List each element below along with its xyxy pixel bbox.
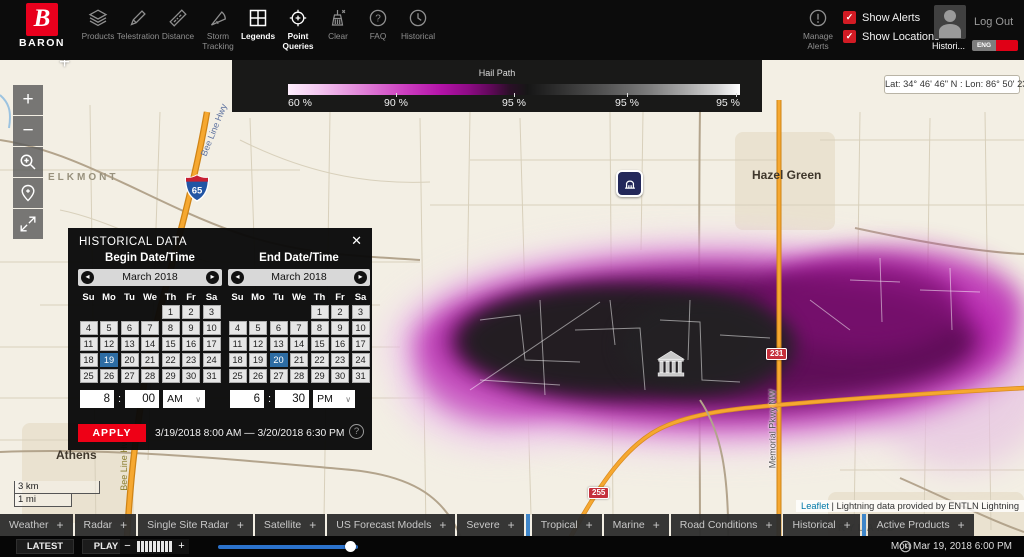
end-time-row: : PM ∨ <box>228 390 370 408</box>
begin-datetime-column: Begin Date/Time ◂ March 2018 ▸ SuMoTuWeT… <box>78 252 222 408</box>
calendar-day-25[interactable]: 25 <box>229 369 247 383</box>
end-meridiem-select[interactable]: PM ∨ <box>313 390 355 408</box>
show-locations-checkbox-row[interactable]: ✓ Show Locations <box>843 30 940 43</box>
legend-label-1: 90 % <box>384 97 408 109</box>
add-icon[interactable]: + <box>120 518 127 532</box>
calendar-empty-cell <box>249 305 267 319</box>
calendar-day-29[interactable]: 29 <box>162 369 180 383</box>
calendar-day-18[interactable]: 18 <box>80 353 98 367</box>
calendar-day-1[interactable]: 1 <box>311 305 329 319</box>
faster-button[interactable]: + <box>174 539 189 554</box>
help-icon[interactable]: ? <box>349 424 364 439</box>
calendar-day-header: Sa <box>352 292 370 303</box>
calendar-day-30[interactable]: 30 <box>182 369 200 383</box>
scale-mi: 1 mi <box>14 493 72 507</box>
calendar-day-31[interactable]: 31 <box>203 369 221 383</box>
toolbar-item-legends[interactable]: Legends <box>238 7 278 42</box>
apply-button[interactable]: APPLY <box>78 424 146 442</box>
end-calendar-grid: SuMoTuWeThFrSa12345678910111213141516171… <box>228 292 370 383</box>
calendar-day-28[interactable]: 28 <box>290 369 308 383</box>
calendar-empty-cell <box>290 305 308 319</box>
frame-rate-bar <box>137 541 140 552</box>
tab-separator <box>526 514 530 536</box>
fullscreen-button[interactable] <box>13 209 43 239</box>
toolbar-item-point-queries[interactable]: Point Queries <box>278 7 318 51</box>
user-avatar[interactable] <box>934 5 966 39</box>
calendar-day-15[interactable]: 15 <box>162 337 180 351</box>
calendar-day-header: Su <box>229 292 247 303</box>
toolbar-item-label: Products <box>82 32 115 42</box>
calendar-day-28[interactable]: 28 <box>141 369 159 383</box>
end-meridiem-value: PM <box>317 393 333 405</box>
toolbar-item-products[interactable]: Products <box>78 7 118 42</box>
interstate-65-shield: 65 <box>184 174 210 202</box>
begin-time-row: : AM ∨ <box>78 390 222 408</box>
calendar-day-15[interactable]: 15 <box>311 337 329 351</box>
fairgrounds-poi-icon[interactable] <box>616 170 643 197</box>
calendar-day-header: Tu <box>121 292 139 303</box>
top-toolbar: B BARON Products Telestration Distanc <box>0 0 1024 60</box>
latest-button[interactable]: LATEST <box>16 539 74 554</box>
calendar-day-5[interactable]: 5 <box>100 321 118 335</box>
frame-rate-bar <box>149 541 152 552</box>
calendar-day-2[interactable]: 2 <box>331 305 349 319</box>
question-icon: ? <box>367 7 389 29</box>
tab-road-conditions[interactable]: Road Conditions+ <box>671 514 782 536</box>
calendar-day-19[interactable]: 19 <box>249 353 267 367</box>
calendar-day-20[interactable]: 20 <box>270 353 288 367</box>
toolbar-item-label: Legends <box>241 32 275 42</box>
calendar-day-3[interactable]: 3 <box>352 305 370 319</box>
add-location-button[interactable] <box>13 178 43 208</box>
calendar-day-header: Tu <box>270 292 288 303</box>
calendar-day-2[interactable]: 2 <box>182 305 200 319</box>
calendar-empty-cell <box>121 305 139 319</box>
baron-logo-mark: B <box>26 3 58 36</box>
selected-range-text: 3/19/2018 8:00 AM — 3/20/2018 6:30 PM <box>155 428 344 439</box>
toolbar-item-label: Distance <box>162 32 194 42</box>
calendar-day-27[interactable]: 27 <box>121 369 139 383</box>
road-label-memorial-pkwy: Memorial Pkwy NW <box>767 390 777 469</box>
crosshair-icon <box>287 7 309 29</box>
avatar-silhouette <box>944 10 956 22</box>
calendar-day-7[interactable]: 7 <box>290 321 308 335</box>
frame-rate-control: − + <box>120 539 189 554</box>
toolbar-item-telestration[interactable]: Telestration <box>118 7 158 42</box>
broom-icon <box>327 7 349 29</box>
show-alerts-checkbox[interactable]: ✓ <box>843 11 856 24</box>
manage-alerts-label: Manage Alerts <box>795 32 841 51</box>
calendar-day-27[interactable]: 27 <box>270 369 288 383</box>
calendar-day-16[interactable]: 16 <box>182 337 200 351</box>
magnifier-plus-icon <box>18 152 38 172</box>
calendar-day-header: Su <box>80 292 98 303</box>
avatar-silhouette <box>939 24 961 38</box>
current-timestamp: Mon Mar 19, 2018 6:00 PM <box>891 541 1012 552</box>
calendar-day-header: Fr <box>182 292 200 303</box>
calendar-day-3[interactable]: 3 <box>203 305 221 319</box>
user-name-label: Histori... <box>932 41 965 51</box>
zoom-out-button[interactable]: − <box>13 116 43 146</box>
tab-us-forecast-models[interactable]: US Forecast Models+ <box>327 514 455 536</box>
expand-arrows-icon <box>18 214 38 234</box>
end-column-header: End Date/Time <box>228 252 370 264</box>
calendar-day-12[interactable]: 12 <box>249 337 267 351</box>
city-label-athens: Athens <box>56 448 97 462</box>
calendar-day-21[interactable]: 21 <box>141 353 159 367</box>
begin-hour-input[interactable] <box>80 390 114 408</box>
legend-title: Hail Path <box>232 68 762 78</box>
calendar-day-24[interactable]: 24 <box>352 353 370 367</box>
legend-label-0: 60 % <box>288 97 312 109</box>
chevron-down-icon: ∨ <box>345 395 351 404</box>
add-icon[interactable]: + <box>765 518 772 532</box>
begin-meridiem-value: AM <box>167 393 183 405</box>
attribution-text: | Lightning data provided by ENTLN Light… <box>832 501 1019 511</box>
calendar-day-5[interactable]: 5 <box>249 321 267 335</box>
calendar-day-17[interactable]: 17 <box>203 337 221 351</box>
show-locations-checkbox[interactable]: ✓ <box>843 30 856 43</box>
calendar-day-17[interactable]: 17 <box>352 337 370 351</box>
frame-rate-bar <box>157 541 160 552</box>
calendar-day-22[interactable]: 22 <box>162 353 180 367</box>
calendar-day-18[interactable]: 18 <box>229 353 247 367</box>
manage-alerts-button[interactable]: Manage Alerts <box>795 7 841 51</box>
route-255-shield: 255 <box>588 487 609 499</box>
calendar-day-16[interactable]: 16 <box>331 337 349 351</box>
calendar-day-9[interactable]: 9 <box>331 321 349 335</box>
next-month-button[interactable]: ▸ <box>206 271 219 284</box>
time-separator: : <box>118 393 121 405</box>
calendar-day-10[interactable]: 10 <box>352 321 370 335</box>
calendar-empty-cell <box>100 305 118 319</box>
begin-month-selector: ◂ March 2018 ▸ <box>78 269 222 286</box>
close-icon[interactable]: ✕ <box>351 233 362 249</box>
timeline-slider[interactable] <box>218 545 358 549</box>
frame-rate-bar <box>161 541 164 552</box>
calendar-day-22[interactable]: 22 <box>311 353 329 367</box>
show-locations-label: Show Locations <box>862 31 940 43</box>
calendar-day-23[interactable]: 23 <box>182 353 200 367</box>
toolbar-item-label: Historical <box>401 32 435 42</box>
legend-label-2: 95 % <box>502 97 526 109</box>
pencil-icon <box>127 7 149 29</box>
tab-satellite[interactable]: Satellite+ <box>255 514 325 536</box>
storm-cone-icon <box>207 7 229 29</box>
location-pin-icon <box>18 183 38 203</box>
toolbar-item-label: Point Queries <box>279 32 317 51</box>
calendar-day-26[interactable]: 26 <box>100 369 118 383</box>
language-toggle-label: ENG <box>972 40 996 51</box>
calendar-day-14[interactable]: 14 <box>290 337 308 351</box>
language-toggle[interactable]: ENG <box>972 40 1018 51</box>
toolbar-item-label: Storm Tracking <box>199 32 237 51</box>
calendar-empty-cell <box>229 305 247 319</box>
apply-row: APPLY 3/19/2018 8:00 AM — 3/20/2018 6:30… <box>78 424 344 442</box>
add-icon[interactable]: + <box>958 518 965 532</box>
timeline-slider-thumb[interactable] <box>345 541 356 552</box>
add-icon[interactable]: + <box>439 518 446 532</box>
calendar-day-4[interactable]: 4 <box>80 321 98 335</box>
calendar-day-8[interactable]: 8 <box>311 321 329 335</box>
layers-icon <box>87 7 109 29</box>
calendar-day-header: Sa <box>203 292 221 303</box>
historical-data-dialog: HISTORICAL DATA ✕ Begin Date/Time ◂ Marc… <box>68 228 372 450</box>
legend-label-4: 95 % <box>716 97 740 109</box>
end-datetime-column: End Date/Time ◂ March 2018 ▸ SuMoTuWeThF… <box>228 252 370 408</box>
calendar-day-header: Th <box>311 292 329 303</box>
show-alerts-label: Show Alerts <box>862 12 920 24</box>
next-month-button[interactable]: ▸ <box>354 271 367 284</box>
tab-tropical[interactable]: Tropical+ <box>532 514 602 536</box>
begin-column-header: Begin Date/Time <box>78 252 222 264</box>
bank-building-icon[interactable] <box>656 349 686 379</box>
product-tab-bar: Weather+ Radar+ Single Site Radar+ Satel… <box>0 514 976 536</box>
calendar-day-13[interactable]: 13 <box>121 337 139 351</box>
map-attribution: Leaflet | Lightning data provided by ENT… <box>796 500 1024 512</box>
city-label-elkmont: ELKMONT <box>48 172 118 183</box>
tab-separator <box>862 514 866 536</box>
add-icon[interactable]: + <box>237 518 244 532</box>
playback-status-bar: LATEST PLAY − + Mon Mar 19, 2018 6:00 PM <box>0 536 1024 557</box>
calendar-day-11[interactable]: 11 <box>80 337 98 351</box>
clock-icon <box>407 7 429 29</box>
map-zoom-controls: + − <box>13 85 43 239</box>
hail-path-legend: Hail Path 60 % 90 % 95 % 95 % 95 % <box>232 60 762 112</box>
us-231-shield: 231 <box>766 348 787 360</box>
calendar-day-6[interactable]: 6 <box>270 321 288 335</box>
calendar-empty-cell <box>141 305 159 319</box>
calendar-day-20[interactable]: 20 <box>121 353 139 367</box>
add-icon[interactable]: + <box>57 518 64 532</box>
calendar-day-30[interactable]: 30 <box>331 369 349 383</box>
calendar-day-29[interactable]: 29 <box>311 369 329 383</box>
show-alerts-checkbox-row[interactable]: ✓ Show Alerts <box>843 11 920 24</box>
calendar-day-12[interactable]: 12 <box>100 337 118 351</box>
frame-rate-bar <box>141 541 144 552</box>
calendar-day-8[interactable]: 8 <box>162 321 180 335</box>
city-label-hazel-green: Hazel Green <box>752 168 821 182</box>
begin-minute-input[interactable] <box>125 390 159 408</box>
calendar-day-header: We <box>141 292 159 303</box>
tab-radar[interactable]: Radar+ <box>75 514 137 536</box>
zoom-to-area-button[interactable] <box>13 147 43 177</box>
calendar-day-24[interactable]: 24 <box>203 353 221 367</box>
svg-text:?: ? <box>375 14 381 25</box>
end-minute-input[interactable] <box>275 390 309 408</box>
calendar-day-7[interactable]: 7 <box>141 321 159 335</box>
calendar-day-6[interactable]: 6 <box>121 321 139 335</box>
tab-marine[interactable]: Marine+ <box>604 514 669 536</box>
lat-lon-readout: Lat: 34° 46' 46" N : Lon: 86° 50' 23" W <box>884 75 1020 94</box>
begin-meridiem-select[interactable]: AM ∨ <box>163 390 205 408</box>
frame-rate-bars <box>135 541 174 552</box>
legend-label-3: 95 % <box>615 97 639 109</box>
slower-button[interactable]: − <box>120 539 135 554</box>
end-month-label: March 2018 <box>228 269 370 286</box>
zoom-in-button[interactable]: + <box>13 85 43 115</box>
calendar-day-26[interactable]: 26 <box>249 369 267 383</box>
calendar-empty-cell <box>270 305 288 319</box>
frame-rate-bar <box>169 541 172 552</box>
end-hour-input[interactable] <box>230 390 264 408</box>
tab-active-products[interactable]: Active Products+ <box>868 514 974 536</box>
begin-month-label: March 2018 <box>78 269 222 286</box>
calendar-day-25[interactable]: 25 <box>80 369 98 383</box>
add-icon[interactable]: + <box>653 518 660 532</box>
tab-severe[interactable]: Severe+ <box>457 514 523 536</box>
calendar-day-14[interactable]: 14 <box>141 337 159 351</box>
toolbar-item-storm-tracking[interactable]: Storm Tracking <box>198 7 238 51</box>
tab-weather[interactable]: Weather+ <box>0 514 73 536</box>
language-toggle-switch <box>996 40 1018 51</box>
toolbar-item-label: Telestration <box>117 32 159 42</box>
end-month-selector: ◂ March 2018 ▸ <box>228 269 370 286</box>
tab-historical[interactable]: Historical+ <box>783 514 859 536</box>
add-icon[interactable]: + <box>309 518 316 532</box>
app-window: ELKMONT Hazel Green Athens RYLAND Bee Li… <box>0 0 1024 557</box>
calendar-day-31[interactable]: 31 <box>352 369 370 383</box>
alert-bell-icon <box>807 7 829 29</box>
frame-rate-bar <box>153 541 156 552</box>
calendar-day-header: We <box>290 292 308 303</box>
tab-single-site-radar[interactable]: Single Site Radar+ <box>138 514 253 536</box>
svg-text:65: 65 <box>192 186 203 197</box>
frame-rate-bar <box>145 541 148 552</box>
calendar-day-13[interactable]: 13 <box>270 337 288 351</box>
toolbar-item-distance[interactable]: Distance <box>158 7 198 42</box>
map-scale-bar: 3 km 1 mi <box>14 481 100 507</box>
logout-button[interactable]: Log Out <box>974 16 1013 28</box>
calendar-empty-cell <box>80 305 98 319</box>
calendar-day-4[interactable]: 4 <box>229 321 247 335</box>
calendar-day-header: Mo <box>249 292 267 303</box>
calendar-day-header: Fr <box>331 292 349 303</box>
baron-logo-word: BARON <box>18 37 66 49</box>
calendar-day-19[interactable]: 19 <box>100 353 118 367</box>
toolbar-item-historical[interactable]: Historical <box>398 7 438 42</box>
add-icon[interactable]: + <box>844 518 851 532</box>
frame-rate-bar <box>165 541 168 552</box>
leaflet-link[interactable]: Leaflet <box>801 501 829 511</box>
calendar-day-header: Mo <box>100 292 118 303</box>
calendar-day-23[interactable]: 23 <box>331 353 349 367</box>
toolbar-item-label: Clear <box>328 32 348 42</box>
legend-grid-icon <box>247 7 269 29</box>
ruler-icon <box>167 7 189 29</box>
add-icon[interactable]: + <box>508 518 515 532</box>
baron-logo[interactable]: B BARON <box>18 3 66 49</box>
calendar-day-1[interactable]: 1 <box>162 305 180 319</box>
calendar-day-11[interactable]: 11 <box>229 337 247 351</box>
toolbar-items: Products Telestration Distance Storm Tra… <box>78 7 438 51</box>
toolbar-item-faq[interactable]: ? FAQ <box>358 7 398 42</box>
toolbar-item-label: FAQ <box>370 32 387 42</box>
calendar-day-header: Th <box>162 292 180 303</box>
begin-calendar-grid: SuMoTuWeThFrSa12345678910111213141516171… <box>78 292 222 383</box>
calendar-day-21[interactable]: 21 <box>290 353 308 367</box>
add-icon[interactable]: + <box>586 518 593 532</box>
toolbar-item-clear[interactable]: Clear <box>318 7 358 42</box>
calendar-day-10[interactable]: 10 <box>203 321 221 335</box>
calendar-day-9[interactable]: 9 <box>182 321 200 335</box>
time-separator: : <box>268 393 271 405</box>
dialog-title: HISTORICAL DATA <box>79 236 187 248</box>
chevron-down-icon: ∨ <box>195 395 201 404</box>
